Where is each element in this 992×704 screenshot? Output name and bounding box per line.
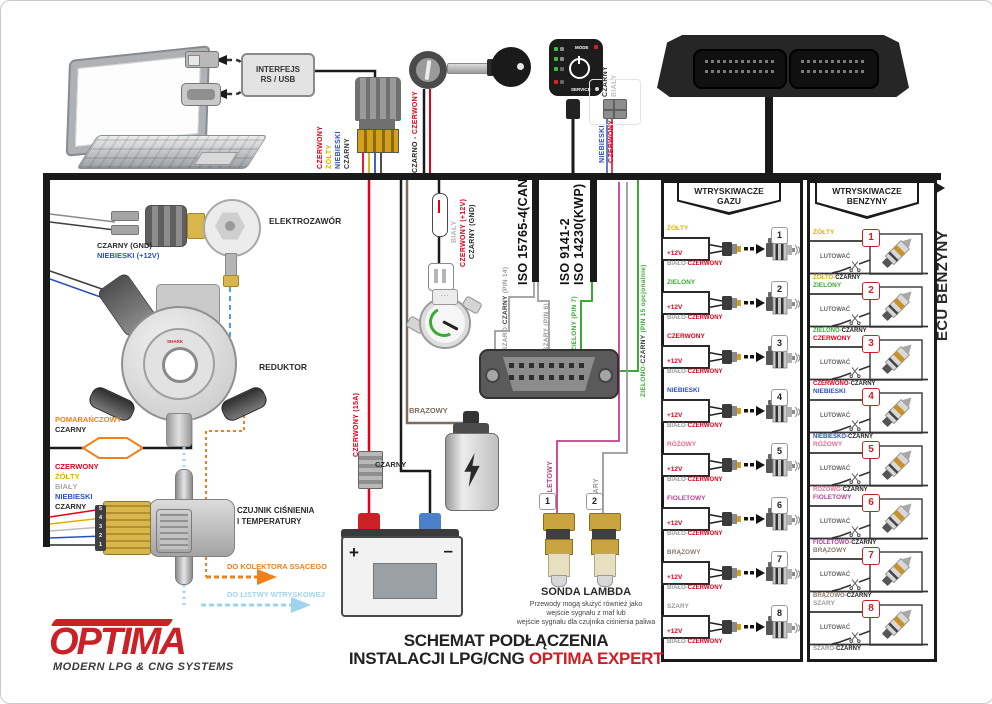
petrol-injector-number: 1 [862,229,880,247]
gas-ground-label: BIAŁO-CZERWONY [667,261,723,267]
gas-wire-color-label: RÓŻOWY [667,442,696,449]
petrol-wire-color-label: CZERWONY [813,336,851,343]
gas-injector-number: 6 [771,497,788,514]
lambda-title: SONDA LAMBDA [516,587,656,598]
gas-ground-label: BIAŁO-CZERWONY [667,477,723,483]
gas-ground-label: BIAŁO-CZERWONY [667,369,723,375]
gas-supply-box: +12V [661,507,710,531]
gas-supply-box: +12V [661,345,710,369]
petrol-wire-color-label: NIEBIESKI [813,389,846,396]
gas-supply-box: +12V [661,399,710,423]
key-icon [491,47,531,87]
brand-tagline: MODERN LPG & CNG SYSTEMS [53,661,234,673]
reducer-brand: SHARK [167,340,183,345]
valve-outlet-fitting [223,275,239,287]
solder-label: LUTOWAĆ [820,519,850,525]
obd-iso-14230-label: ISO 14230(KWP) [573,187,586,285]
petrol-wire-color-label: ŻÓŁTY [813,230,834,237]
gas-injector-row: ŻÓŁTY+12VBIAŁO-CZERWONY1 [664,225,794,279]
solder-label: LUTOWAĆ [820,413,850,419]
solenoid-terminal [111,225,139,235]
map-loop-black-label: CZARNY [55,426,86,434]
sensor-wire-white-label: BIAŁY [55,483,78,491]
petrol-injector-rows: ŻÓŁTYLUTOWAĆŻÓŁTO-CZARNY1ZIELONYLUTOWAĆZ… [810,229,934,653]
petrol-injector-row: BRĄZOWYLUTOWAĆBRĄZOWO-CZARNY7 [810,547,928,600]
coil-wire-label: BRĄZOWY [409,407,448,415]
gas-wire-color-label: CZERWONY [667,334,705,341]
sensor-wire-red-label: CZERWONY [55,463,99,471]
petrol-wire-color-label: ZIELONY [813,283,841,290]
battery-plus-sign: + [349,544,359,561]
gauge-wire-red-label: CZERWONY (+12V) [460,195,467,267]
switch-mate-connector [603,99,627,119]
gauge-wire-black-label: CZARNY (GND) [469,197,476,259]
interface-label2: RS / USB [261,75,296,85]
gauge-top-connector: ... [432,289,458,305]
gas-injector-number: 2 [771,281,788,298]
petrol-injector-number: 5 [862,441,880,459]
serial-plug-icon [181,83,221,106]
obd-pin7-label: ZIELONY (PIN 7) [572,277,579,351]
obd-connector [479,349,619,399]
gas-supply-box: +12V [661,291,710,315]
switch-connector [566,99,580,119]
obd-iso-9141-label: ISO 9141-2 [559,187,572,285]
sensor-wire-yellow-label: ŻÓŁTY [55,473,80,481]
solder-label: LUTOWAĆ [820,466,850,472]
solder-label: LUTOWAĆ [820,307,850,313]
petrol-injector-number: 7 [862,547,880,565]
interface-wire-red-label: CZERWONY [317,111,324,169]
programmer-connector-pins [357,129,399,153]
reduktor-label: REDUKTOR [259,363,307,372]
gas-injector-number: 1 [771,227,788,244]
petrol-return-wire-label: SZARO-CZARNY [813,646,861,652]
switch-wire-blue-label: NIEBIESKI [599,119,606,163]
petrol-return-wire-label: ŻÓŁTO-CZARNY [813,275,860,281]
gas-injectors-column: ŻÓŁTY+12VBIAŁO-CZERWONY1ZIELONY+12VBIAŁO… [661,180,803,662]
petrol-wire-color-label: RÓŻOWY [813,442,842,449]
elektrozawor-12v-label: NIEBIESKI (+12V) [97,252,159,260]
lambda-probe [589,513,619,585]
petrol-injector-number: 6 [862,494,880,512]
blue-arrow-label: DO LISTWY WTRYSKOWEJ [227,591,325,599]
petrol-return-wire-label: ZIELONO-CZARNY [813,328,867,334]
lambda-probe1-number: 1 [539,493,556,510]
brand-logo: OPTIMA [49,623,185,661]
gas-injector-number: 7 [771,551,788,568]
fuse-capsule [432,193,448,237]
solder-label: LUTOWAĆ [820,625,850,631]
key-hole [517,63,524,70]
gas-supply-box: +12V [661,237,710,261]
petrol-return-wire-label: NIEBIESKO-CZARNY [813,434,873,440]
solder-label: LUTOWAĆ [820,360,850,366]
gas-injector-number: 8 [771,605,788,622]
petrol-injector-row: CZERWONYLUTOWAĆCZERWONO-CZARNY3 [810,335,928,388]
petrol-injectors-column: ŻÓŁTYLUTOWAĆŻÓŁTO-CZARNY1ZIELONYLUTOWAĆZ… [807,180,937,662]
sensor-connector [103,501,151,555]
petrol-injector-row: ZIELONYLUTOWAĆZIELONO-CZARNY2 [810,282,928,335]
gas-supply-box: +12V [661,453,710,477]
gas-supply-box: +12V [661,561,710,585]
petrol-wire-color-label: SZARY [813,601,835,608]
petrol-injector-number: 8 [862,600,880,618]
interface-wire-black-label: CZARNY [344,119,351,169]
interface-wire-yellow-label: ŻÓŁTY [326,123,333,169]
gas-injector-number: 5 [771,443,788,460]
petrol-injector-row: FIOLETOWYLUTOWAĆFIOLETOWO-CZARNY6 [810,494,928,547]
switch-wire-black-label: CZARNY [602,59,609,97]
sensor-label-line1: CZUJNIK CIŚNIENIA [237,507,314,515]
obd-iso-can-label: ISO 15765-4(CAN) [517,183,530,285]
level-gauge: ... [417,293,471,349]
petrol-ecu-box [657,35,909,97]
pressure-sensor-face [156,509,192,553]
valve-center [225,221,235,231]
switch-wire-red-label: CZERWONY [608,119,615,163]
battery-window [373,563,437,599]
interface-box: INTERFEJS RS / USB [241,53,315,97]
gauge-wire-white-label: BIAŁY [451,199,458,243]
battery-black-wire-label: CZARNY [375,461,406,469]
interface-wire-blue-label: NIEBIESKI [335,113,342,169]
laptop-keyboard [76,135,267,169]
switch-mode-label: MODE [575,45,589,50]
gas-ground-label: BIAŁO-CZERWONY [667,423,723,429]
reducer-outlet [166,413,192,447]
gas-ground-label: BIAŁO-CZERWONY [667,531,723,537]
gas-injector-rows: ŻÓŁTY+12VBIAŁO-CZERWONY1ZIELONY+12VBIAŁO… [664,225,800,657]
petrol-wire-color-label: FIOLETOWY [813,495,852,502]
petrol-injector-number: 3 [862,335,880,353]
obd-pin6-label: SZARY (PIN 6) [544,277,551,351]
battery-red-wire-label: CZERWONY (15A) [353,397,360,457]
sensor-pin-numbers: 54321 [95,505,106,551]
diagram-title-line2: INSTALACJI LPG/CNG OPTIMA EXPERT [311,649,701,669]
gas-injector-row: RÓŻOWY+12VBIAŁO-CZERWONY5 [664,441,794,495]
map-loop-orange-label: POMARAŃCZOWY [55,416,122,424]
programmer-connector [355,77,401,121]
gas-wire-color-label: ZIELONY [667,280,695,287]
interface-label: INTERFEJS [256,65,300,75]
gas-wire-color-label: FIOLETOWY [667,496,706,503]
petrol-return-wire-label: BRĄZOWO-CZARNY [813,593,872,599]
petrol-injector-number: 2 [862,282,880,300]
petrol-injector-row: SZARYLUTOWAĆSZARO-CZARNY8 [810,600,928,653]
gas-wire-color-label: ŻÓŁTY [667,226,688,233]
sensor-wire-black-label: CZARNY [55,503,86,511]
usb-plug-icon [185,51,219,68]
wiring-diagram-canvas: INTERFEJS RS / USB CZERWONY ŻÓŁTY NIEBIE… [0,0,992,704]
petrol-return-wire-label: RÓŻOWO-CZARNY [813,487,868,493]
petrol-injector-number: 4 [862,388,880,406]
gas-ground-label: BIAŁO-CZERWONY [667,315,723,321]
power-button-icon[interactable] [569,58,590,79]
solder-label: LUTOWAĆ [820,254,850,260]
gas-injector-row: BRĄZOWY+12VBIAŁO-CZERWONY7 [664,549,794,603]
ecu-benzyny-label: ECU BENZYNY [935,199,950,341]
obd-pin14-label: SZARO-CZARNY (PIN 14) [503,247,510,351]
sensor-wire-blue-label: NIEBIESKI [55,493,93,501]
diagram-title-line1: SCHEMAT PODŁĄCZENIA [331,631,681,651]
gas-injector-row: CZERWONY+12VBIAŁO-CZERWONY3 [664,333,794,387]
gas-injector-row: ZIELONY+12VBIAŁO-CZERWONY2 [664,279,794,333]
gas-ground-label: BIAŁO-CZERWONY [667,585,723,591]
ignition-wire-label: CZARNO - CZERWONY [412,91,419,173]
lambda-probe [543,513,573,585]
gas-injector-row: FIOLETOWY+12VBIAŁO-CZERWONY6 [664,495,794,549]
gas-wire-color-label: SZARY [667,604,689,611]
petrol-return-wire-label: CZERWONO-CZARNY [813,381,876,387]
valve-outlet-stem [225,253,237,277]
gas-injector-number: 4 [771,389,788,406]
petrol-injector-row: NIEBIESKILUTOWAĆNIEBIESKO-CZARNY4 [810,388,928,441]
gas-injector-row: NIEBIESKI+12VBIAŁO-CZERWONY4 [664,387,794,441]
ignition-lock-icon [409,51,447,89]
lambda-probe2-number: 2 [586,493,603,510]
switch-service-label: SERVICE [571,87,591,92]
obd-pin15-label: ZIELONO-CZARNY (PIN 15 opcjonalnie) [641,247,648,397]
petrol-return-wire-label: FIOLETOWO-CZARNY [813,540,876,546]
gas-injector-number: 3 [771,335,788,352]
petrol-wire-color-label: BRĄZOWY [813,548,847,555]
elektrozawor-gnd-label: CZARNY (GND) [97,242,152,250]
sensor-label-line2: I TEMPERATURY [237,518,301,526]
elektrozawor-label: ELEKTROZAWÓR [269,217,341,226]
programmer-connector-mid [359,119,395,129]
battery-minus-sign: – [444,542,453,559]
solenoid-terminal [111,211,139,221]
gauge-connector [428,263,454,291]
orange-arrow-label: DO KOLEKTORA SSĄCEGO [227,563,327,571]
gas-wire-color-label: BRĄZOWY [667,550,701,557]
gas-wire-color-label: NIEBIESKI [667,388,700,395]
petrol-injector-row: RÓŻOWYLUTOWAĆRÓŻOWO-CZARNY5 [810,441,928,494]
reducer-hub [162,347,198,383]
inline-fuse-holder [358,451,383,489]
petrol-injector-row: ŻÓŁTYLUTOWAĆŻÓŁTO-CZARNY1 [810,229,928,282]
switch-wire-white-label: BIAŁY [611,65,618,97]
solder-label: LUTOWAĆ [820,572,850,578]
